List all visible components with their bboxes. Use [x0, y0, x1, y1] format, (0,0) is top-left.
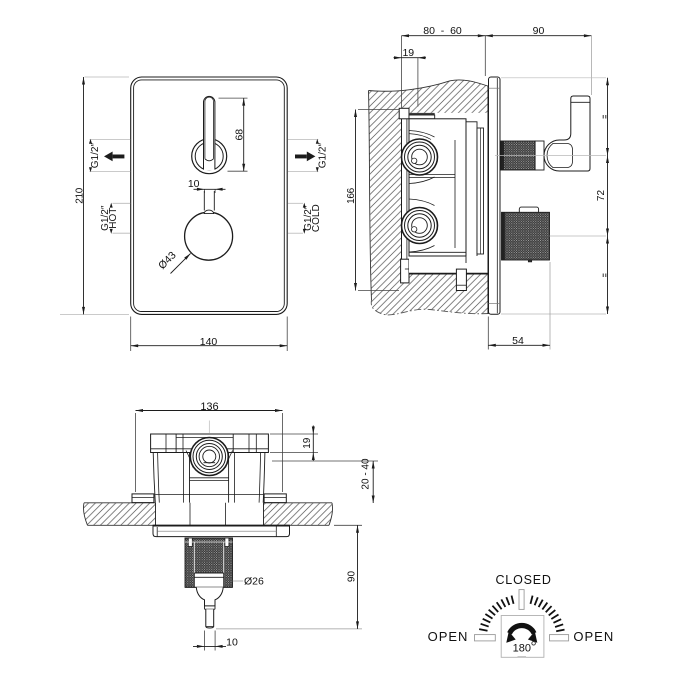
svg-text:80 - 60: 80 - 60	[423, 25, 462, 37]
svg-text:90: 90	[533, 25, 545, 37]
svg-text:CLOSED: CLOSED	[495, 573, 551, 587]
svg-text:90: 90	[346, 571, 357, 583]
svg-text:10: 10	[226, 637, 238, 649]
svg-text:Ø26: Ø26	[244, 575, 264, 587]
svg-text:68: 68	[233, 129, 245, 141]
svg-text:19: 19	[402, 47, 414, 59]
svg-text:OPEN: OPEN	[573, 629, 614, 644]
svg-text:136: 136	[200, 401, 218, 413]
svg-text:19: 19	[302, 437, 313, 449]
svg-text:210: 210	[75, 187, 86, 204]
svg-text:10: 10	[188, 178, 200, 190]
svg-text:180: 180	[513, 643, 531, 655]
svg-text:20 - 40: 20 - 40	[361, 458, 372, 490]
svg-text:54: 54	[512, 335, 524, 347]
svg-text:HOT: HOT	[108, 208, 119, 229]
svg-text:G1/2″: G1/2″	[317, 143, 328, 169]
svg-text:166: 166	[346, 187, 357, 204]
svg-text:G1/2″: G1/2″	[90, 143, 101, 169]
svg-text:72: 72	[596, 190, 607, 202]
svg-text:140: 140	[200, 336, 218, 348]
svg-text:COLD: COLD	[311, 204, 322, 232]
svg-text:OPEN: OPEN	[428, 629, 469, 644]
